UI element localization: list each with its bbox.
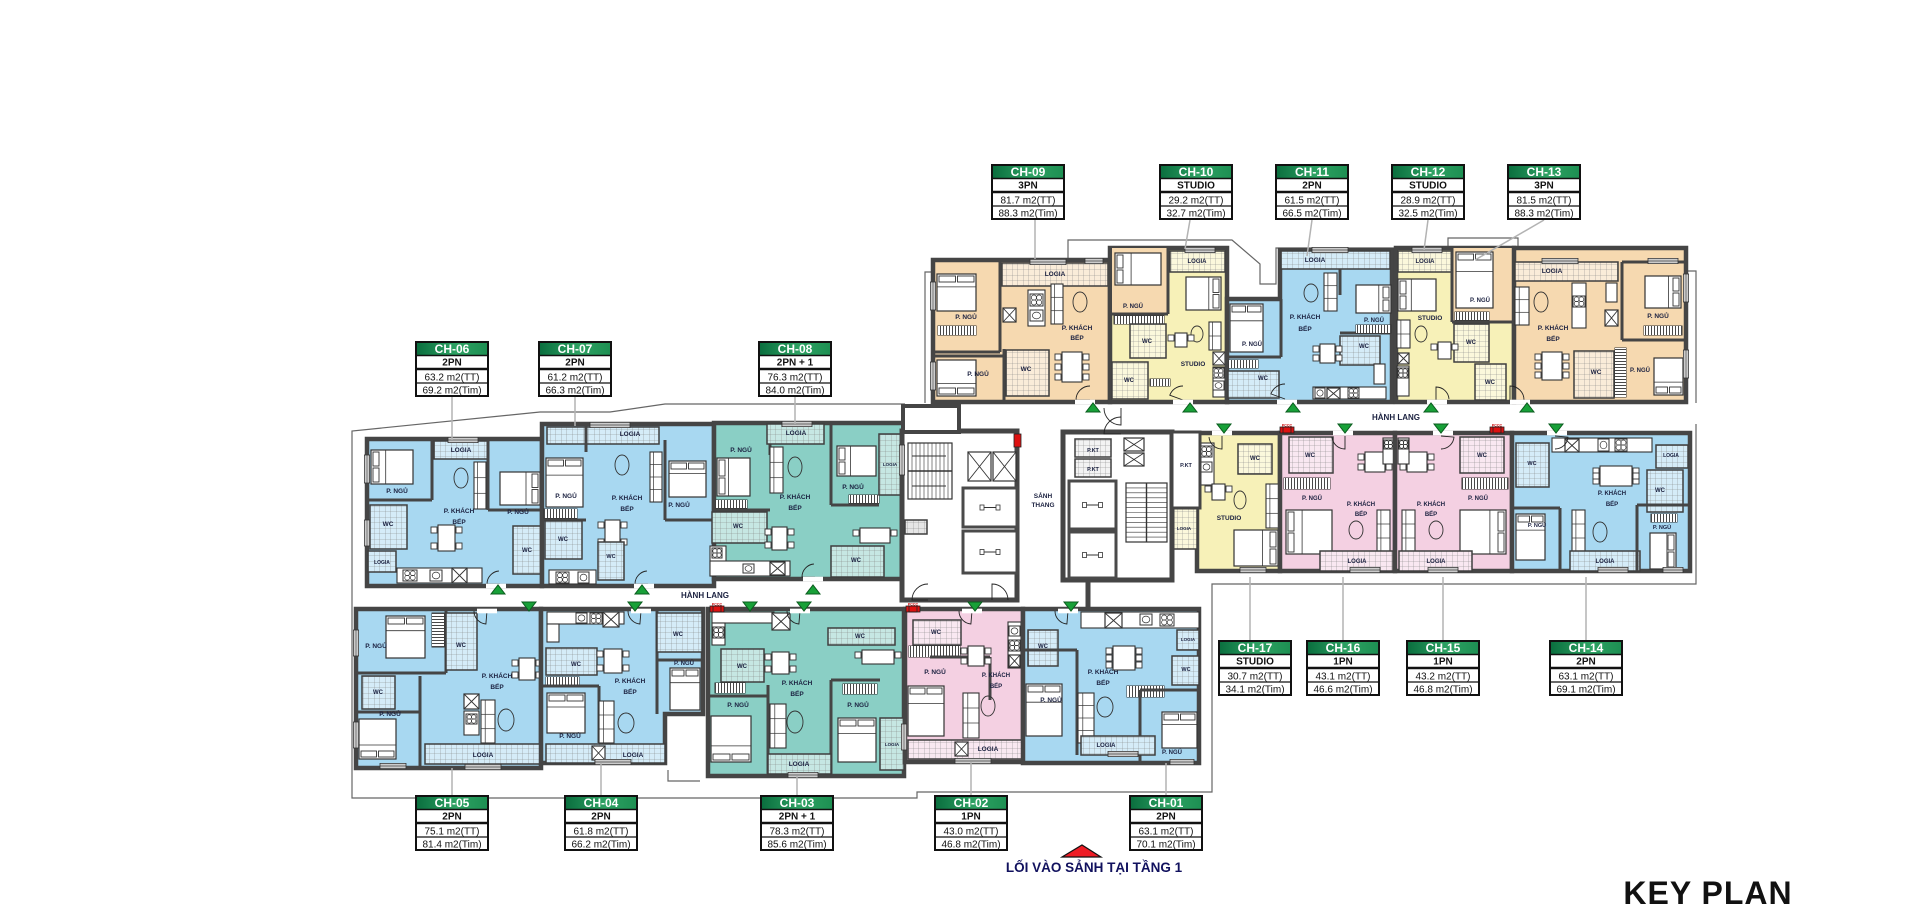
svg-text:CH-07: CH-07	[558, 342, 593, 356]
svg-text:HÀNH LANG: HÀNH LANG	[1372, 413, 1420, 422]
svg-text:63.2 m2(TT): 63.2 m2(TT)	[424, 373, 479, 384]
svg-text:69.2 m2(Tim): 69.2 m2(Tim)	[422, 386, 481, 397]
svg-text:PCCC: PCCC	[712, 603, 723, 607]
svg-text:PCCC: PCCC	[1282, 424, 1293, 428]
svg-text:CH-05: CH-05	[435, 796, 470, 810]
svg-text:LOGIA: LOGIA	[1427, 559, 1447, 565]
svg-text:P. NGỦ: P. NGỦ	[1242, 341, 1262, 348]
svg-text:2PN: 2PN	[1302, 181, 1321, 192]
svg-text:P. NGỦ: P. NGỦ	[1528, 522, 1546, 529]
svg-text:34.1 m2(Tim): 34.1 m2(Tim)	[1225, 685, 1284, 696]
svg-text:46.8 m2(Tim): 46.8 m2(Tim)	[941, 840, 1000, 851]
svg-text:P. NGỦ: P. NGỦ	[559, 731, 581, 740]
svg-text:STUDIO: STUDIO	[1181, 361, 1206, 368]
svg-text:P. NGỦ: P. NGỦ	[955, 312, 977, 321]
svg-text:CH-16: CH-16	[1326, 641, 1361, 655]
svg-text:P. KHÁCH: P. KHÁCH	[1347, 501, 1375, 508]
svg-text:LOGIA: LOGIA	[451, 447, 472, 454]
svg-text:28.9 m2(TT): 28.9 m2(TT)	[1400, 196, 1455, 207]
svg-text:BẾP: BẾP	[1606, 501, 1618, 508]
svg-text:46.6 m2(Tim): 46.6 m2(Tim)	[1313, 685, 1372, 696]
svg-text:WC: WC	[522, 548, 533, 554]
svg-text:STUDIO: STUDIO	[1177, 181, 1215, 192]
svg-text:LOGIA: LOGIA	[789, 761, 810, 768]
svg-text:81.7 m2(TT): 81.7 m2(TT)	[1000, 196, 1055, 207]
svg-text:1PN: 1PN	[961, 812, 980, 823]
svg-text:P. NGỦ: P. NGỦ	[847, 700, 869, 709]
svg-text:P. KHÁCH: P. KHÁCH	[780, 492, 811, 501]
svg-text:PCCC: PCCC	[908, 603, 919, 607]
svg-text:61.5 m2(TT): 61.5 m2(TT)	[1284, 196, 1339, 207]
svg-text:46.8 m2(Tim): 46.8 m2(Tim)	[1413, 685, 1472, 696]
svg-text:WC: WC	[1258, 376, 1269, 382]
svg-text:WC: WC	[1591, 369, 1602, 376]
svg-text:P.KT: P.KT	[1087, 448, 1099, 454]
svg-text:P. KHÁCH: P. KHÁCH	[444, 506, 475, 515]
svg-text:LOGIA: LOGIA	[620, 431, 641, 438]
svg-text:THANG: THANG	[1031, 502, 1054, 509]
svg-text:WC: WC	[606, 554, 615, 560]
svg-text:LOGIA: LOGIA	[1188, 259, 1208, 265]
svg-text:1PN: 1PN	[1333, 657, 1352, 668]
svg-text:P. NGỦ: P. NGỦ	[1468, 495, 1488, 502]
svg-text:P. KHÁCH: P. KHÁCH	[1062, 323, 1093, 332]
svg-text:LOGIA: LOGIA	[978, 746, 999, 753]
svg-text:30.7 m2(TT): 30.7 m2(TT)	[1227, 672, 1282, 683]
svg-text:43.2 m2(TT): 43.2 m2(TT)	[1415, 672, 1470, 683]
svg-text:81.4 m2(Tim): 81.4 m2(Tim)	[422, 840, 481, 851]
svg-text:SẢNH: SẢNH	[1034, 491, 1053, 500]
svg-text:WC: WC	[1477, 453, 1488, 459]
svg-text:CH-13: CH-13	[1527, 165, 1562, 179]
svg-text:WC: WC	[931, 630, 942, 636]
svg-text:78.3 m2(TT): 78.3 m2(TT)	[769, 827, 824, 838]
svg-text:BẾP: BẾP	[1355, 511, 1367, 518]
svg-text:P. NGỦ: P. NGỦ	[674, 660, 694, 667]
svg-text:2PN: 2PN	[591, 812, 610, 823]
svg-text:WC: WC	[456, 643, 467, 649]
svg-text:WC: WC	[383, 521, 394, 528]
svg-text:P. KHÁCH: P. KHÁCH	[612, 493, 643, 502]
svg-text:1PN: 1PN	[1433, 657, 1452, 668]
svg-text:P. NGỦ: P. NGỦ	[730, 445, 752, 454]
svg-text:CH-17: CH-17	[1238, 641, 1273, 655]
svg-text:LOGIA: LOGIA	[786, 430, 807, 437]
svg-text:WC: WC	[1250, 456, 1261, 462]
svg-text:WC: WC	[1124, 378, 1135, 384]
svg-text:WC: WC	[1655, 488, 1666, 494]
svg-text:WC: WC	[1021, 366, 1032, 373]
svg-text:CH-03: CH-03	[780, 796, 815, 810]
svg-text:P.KT: P.KT	[1087, 467, 1099, 473]
svg-text:STUDIO: STUDIO	[1236, 657, 1274, 668]
svg-text:HÀNH LANG: HÀNH LANG	[681, 591, 729, 600]
svg-text:LOGIA: LOGIA	[1663, 453, 1679, 459]
svg-text:LOGIA: LOGIA	[1097, 743, 1117, 749]
svg-text:P. NGỦ: P. NGỦ	[1302, 495, 1322, 502]
svg-text:WC: WC	[1466, 340, 1477, 346]
svg-text:P. KHÁCH: P. KHÁCH	[482, 671, 513, 680]
svg-text:2PN + 1: 2PN + 1	[779, 812, 816, 823]
svg-text:STUDIO: STUDIO	[1409, 181, 1447, 192]
svg-text:69.1 m2(Tim): 69.1 m2(Tim)	[1556, 685, 1615, 696]
svg-text:CH-01: CH-01	[1149, 796, 1184, 810]
svg-text:2PN: 2PN	[565, 358, 584, 369]
svg-text:29.2 m2(TT): 29.2 m2(TT)	[1168, 196, 1223, 207]
svg-text:3PN: 3PN	[1534, 181, 1553, 192]
svg-text:P. KHÁCH: P. KHÁCH	[1598, 490, 1626, 497]
svg-text:STUDIO: STUDIO	[1217, 515, 1242, 522]
svg-text:2PN + 1: 2PN + 1	[777, 358, 814, 369]
svg-text:CH-10: CH-10	[1179, 165, 1214, 179]
svg-text:LOGIA: LOGIA	[1416, 259, 1436, 265]
svg-text:P. NGỦ: P. NGỦ	[1647, 311, 1669, 320]
svg-text:LOGIA: LOGIA	[1348, 559, 1368, 565]
svg-text:P. KHÁCH: P. KHÁCH	[782, 678, 813, 687]
svg-text:75.1 m2(TT): 75.1 m2(TT)	[424, 827, 479, 838]
svg-text:P. NGỦ: P. NGỦ	[1040, 695, 1062, 704]
svg-text:WC: WC	[737, 664, 748, 670]
svg-text:P. NGỦ: P. NGỦ	[1653, 524, 1671, 531]
svg-text:61.8 m2(TT): 61.8 m2(TT)	[573, 827, 628, 838]
svg-text:LỐI VÀO SẢNH TẠI TẦNG 1: LỐI VÀO SẢNH TẠI TẦNG 1	[1006, 860, 1183, 875]
svg-text:LOGIA: LOGIA	[374, 560, 390, 566]
svg-text:P. NGỦ: P. NGỦ	[668, 500, 690, 509]
svg-text:P. KHÁCH: P. KHÁCH	[982, 672, 1010, 679]
svg-text:WC: WC	[1142, 339, 1153, 345]
svg-text:2PN: 2PN	[1156, 812, 1175, 823]
svg-text:32.7 m2(Tim): 32.7 m2(Tim)	[1166, 209, 1225, 220]
svg-text:BẾP: BẾP	[1425, 511, 1437, 518]
svg-text:43.1 m2(TT): 43.1 m2(TT)	[1315, 672, 1370, 683]
svg-text:2PN: 2PN	[1576, 657, 1595, 668]
svg-text:P. NGỦ: P. NGỦ	[1470, 297, 1490, 304]
svg-text:LOGIA: LOGIA	[1045, 271, 1066, 278]
svg-text:WC: WC	[373, 690, 384, 696]
svg-text:P. KHÁCH: P. KHÁCH	[1290, 312, 1321, 321]
svg-text:CH-09: CH-09	[1011, 165, 1046, 179]
svg-text:CH-12: CH-12	[1411, 165, 1446, 179]
svg-text:LOGIA: LOGIA	[1596, 559, 1616, 565]
svg-text:2PN: 2PN	[442, 358, 461, 369]
svg-text:LOGIA: LOGIA	[883, 462, 898, 467]
svg-text:WC: WC	[851, 558, 862, 564]
svg-text:LOGIA: LOGIA	[473, 752, 494, 759]
svg-text:32.5 m2(Tim): 32.5 m2(Tim)	[1398, 209, 1457, 220]
svg-text:85.6 m2(Tim): 85.6 m2(Tim)	[767, 840, 826, 851]
svg-text:WC: WC	[558, 537, 569, 543]
svg-text:P. NGỦ: P. NGỦ	[386, 486, 408, 495]
svg-text:STUDIO: STUDIO	[1418, 315, 1443, 322]
svg-text:LOGIA: LOGIA	[1542, 268, 1563, 275]
svg-text:CH-11: CH-11	[1295, 165, 1329, 179]
svg-text:LOGIA: LOGIA	[1177, 526, 1192, 531]
svg-text:63.1 m2(TT): 63.1 m2(TT)	[1558, 672, 1613, 683]
svg-text:P. NGỦ: P. NGỦ	[507, 507, 529, 516]
svg-text:P. NGỦ: P. NGỦ	[1630, 367, 1650, 374]
svg-text:CH-06: CH-06	[435, 342, 470, 356]
svg-text:P. NGỦ: P. NGỦ	[1123, 303, 1143, 310]
svg-text:BẾP: BẾP	[990, 683, 1002, 690]
svg-text:84.0 m2(Tim): 84.0 m2(Tim)	[765, 386, 824, 397]
svg-text:P. KHÁCH: P. KHÁCH	[615, 676, 646, 685]
svg-text:WC: WC	[1181, 667, 1190, 673]
svg-text:2PN: 2PN	[442, 812, 461, 823]
svg-text:P. NGỦ: P. NGỦ	[727, 700, 749, 709]
svg-text:43.0 m2(TT): 43.0 m2(TT)	[943, 827, 998, 838]
svg-text:88.3 m2(Tim): 88.3 m2(Tim)	[998, 209, 1057, 220]
svg-text:LOGIA: LOGIA	[1181, 637, 1196, 642]
svg-text:KEY PLAN: KEY PLAN	[1623, 875, 1792, 906]
svg-text:CH-14: CH-14	[1569, 641, 1604, 655]
svg-text:CH-02: CH-02	[954, 796, 989, 810]
svg-text:61.2 m2(TT): 61.2 m2(TT)	[547, 373, 602, 384]
svg-text:CH-04: CH-04	[584, 796, 619, 810]
svg-text:P. NGỦ: P. NGỦ	[1364, 317, 1384, 324]
svg-text:66.2 m2(Tim): 66.2 m2(Tim)	[571, 840, 630, 851]
svg-text:P. NGỦ: P. NGỦ	[1162, 749, 1182, 756]
svg-text:63.1 m2(TT): 63.1 m2(TT)	[1138, 827, 1193, 838]
svg-text:88.3 m2(Tim): 88.3 m2(Tim)	[1514, 209, 1573, 220]
svg-text:P. NGỦ: P. NGỦ	[924, 667, 946, 676]
svg-text:LOGIA: LOGIA	[885, 742, 900, 747]
svg-text:P. NGỦ: P. NGỦ	[365, 641, 387, 650]
svg-text:3PN: 3PN	[1018, 181, 1037, 192]
svg-text:P. KHÁCH: P. KHÁCH	[1538, 323, 1569, 332]
svg-text:WC: WC	[1305, 453, 1316, 459]
svg-text:P.KT: P.KT	[1180, 463, 1192, 469]
svg-text:P. KHÁCH: P. KHÁCH	[1417, 501, 1445, 508]
svg-text:WC: WC	[733, 524, 744, 530]
svg-text:76.3 m2(TT): 76.3 m2(TT)	[767, 373, 822, 384]
svg-text:PCCC: PCCC	[1492, 424, 1503, 428]
svg-text:P. NGỦ: P. NGỦ	[555, 491, 577, 500]
svg-text:WC: WC	[673, 632, 684, 638]
svg-text:WC: WC	[1359, 344, 1370, 350]
svg-text:66.5 m2(Tim): 66.5 m2(Tim)	[1282, 209, 1341, 220]
svg-text:81.5 m2(TT): 81.5 m2(TT)	[1516, 196, 1571, 207]
svg-text:P. NGỦ: P. NGỦ	[842, 482, 864, 491]
svg-text:CH-15: CH-15	[1426, 641, 1461, 655]
svg-text:WC: WC	[1527, 461, 1536, 467]
svg-text:P. NGỦ: P. NGỦ	[379, 709, 401, 718]
svg-text:LOGIA: LOGIA	[623, 752, 644, 759]
svg-text:70.1 m2(Tim): 70.1 m2(Tim)	[1136, 840, 1195, 851]
svg-text:WC: WC	[571, 662, 582, 668]
svg-text:P. NGỦ: P. NGỦ	[967, 369, 989, 378]
svg-text:LOGIA: LOGIA	[1305, 257, 1326, 264]
svg-text:WC: WC	[855, 634, 866, 640]
svg-text:66.3 m2(Tim): 66.3 m2(Tim)	[545, 386, 604, 397]
svg-text:CH-08: CH-08	[778, 342, 813, 356]
svg-text:WC: WC	[1485, 380, 1496, 386]
